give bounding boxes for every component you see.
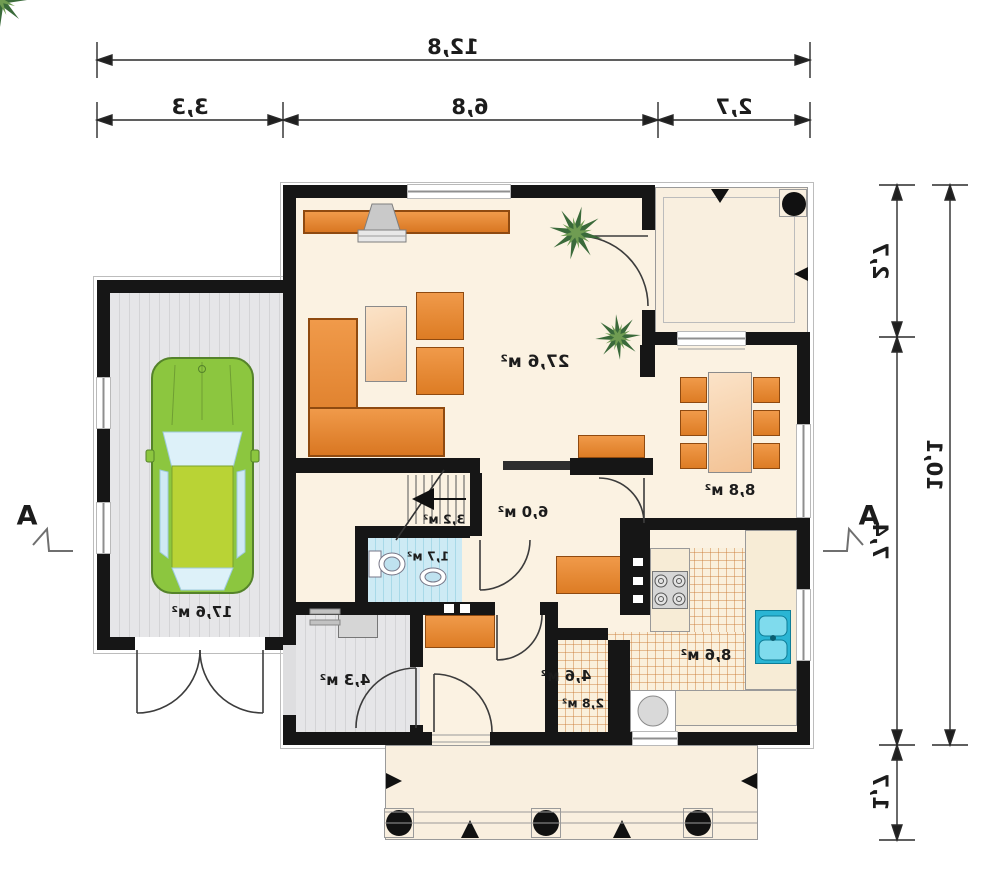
kitchen-window	[797, 590, 810, 660]
porch-column	[533, 810, 559, 836]
garage-door-left-leaf	[137, 650, 200, 713]
tv-sideboard	[503, 461, 570, 470]
vent-square	[633, 558, 643, 566]
wall-pantry-right	[608, 640, 630, 732]
dim-top-seg-terrace: 2,7	[715, 95, 752, 119]
room-label-dining: 8,8 м²	[705, 481, 756, 499]
water-heater-base	[630, 690, 676, 732]
vent-square	[444, 604, 454, 613]
sofa-horizontal-arm	[308, 407, 445, 457]
room-label-pantry: 2,8 м²	[562, 696, 604, 711]
front-door-opening	[432, 732, 490, 745]
armchair	[416, 292, 464, 340]
garage-wall-top	[97, 280, 296, 293]
living-wall-shelf	[303, 210, 510, 234]
garage-window-1	[97, 378, 110, 428]
terrace-door-opening	[642, 230, 655, 310]
vent-square	[633, 577, 643, 585]
wall-hall-south-b	[540, 602, 558, 615]
section-marker-right: A	[859, 501, 880, 532]
pantry-floor	[558, 640, 608, 732]
kitchen-sink	[755, 610, 791, 664]
vent-square	[633, 595, 643, 603]
kitchen-bottom-window	[633, 732, 677, 745]
dining-window	[797, 425, 810, 517]
dim-right-seg-porch: 1,7	[868, 773, 892, 810]
living-cabinet	[578, 435, 645, 458]
dining-chair	[680, 443, 707, 469]
dim-top-seg-house: 6,8	[451, 95, 488, 119]
garage-boiler-opening	[283, 645, 296, 715]
kitchen-floor-tile-a	[687, 548, 745, 632]
garage-door-right-leaf	[200, 650, 263, 713]
room-label-hall: 6,0 м²	[498, 503, 549, 521]
wall-bottom	[283, 732, 810, 745]
terrace-column	[782, 192, 806, 216]
dim-right-total: 10,1	[922, 439, 946, 491]
stove	[652, 571, 688, 609]
room-label-stairs: 3,2 м²	[423, 512, 465, 527]
wall-dining-left-stub	[640, 345, 655, 377]
room-label-boiler: 4,3 м²	[320, 671, 371, 689]
dining-table	[708, 372, 752, 473]
wall-right	[797, 332, 810, 745]
garage-window-2	[97, 503, 110, 553]
wall-pantry-top	[545, 628, 608, 640]
garage-floor	[110, 293, 283, 637]
wall-wc-left	[355, 538, 368, 602]
kitchen-counter-bottom	[672, 690, 797, 726]
room-label-wc: 1,7 м²	[407, 549, 449, 564]
dining-chair	[680, 410, 707, 436]
room-label-living: 27,6 м²	[500, 352, 569, 372]
dining-chair	[753, 377, 780, 403]
dining-chair	[680, 377, 707, 403]
dining-top-window	[678, 332, 745, 345]
room-label-entry: 4,6 м²	[541, 667, 592, 685]
porch-column	[685, 810, 711, 836]
terrace-curb	[663, 197, 795, 323]
hall-cabinet	[556, 556, 622, 594]
garage-wall-left	[97, 280, 110, 650]
room-label-kitchen: 8,6 м²	[681, 646, 732, 664]
dining-chair	[753, 443, 780, 469]
wall-dining-kitchen	[650, 518, 797, 530]
coffee-table	[365, 306, 407, 382]
garage-door-opening	[135, 637, 265, 650]
dim-right-seg-terrace: 2,7	[868, 242, 892, 279]
porch-column	[386, 810, 412, 836]
dim-top-seg-garage: 3,3	[171, 95, 208, 119]
wall-living-hall	[296, 458, 480, 473]
floor-plan: 12,8 3,3 6,8 2,7 2,7 7,4 1,7 10,1 A A 27…	[0, 0, 1000, 889]
living-window	[408, 185, 510, 198]
wall-living-hall-stub	[570, 458, 653, 475]
room-label-garage: 17,6 м²	[171, 603, 232, 621]
dining-chair	[753, 410, 780, 436]
armchair	[416, 347, 464, 395]
wall-stairs-right	[470, 473, 482, 536]
wall-boiler-right-stub	[410, 725, 423, 732]
vent-square	[460, 604, 470, 613]
wall-boiler-right	[410, 615, 423, 667]
wall-wc-top	[355, 526, 470, 538]
entry-wardrobe	[425, 615, 495, 648]
dim-top-total: 12,8	[427, 35, 479, 59]
section-marker-left: A	[17, 501, 38, 532]
